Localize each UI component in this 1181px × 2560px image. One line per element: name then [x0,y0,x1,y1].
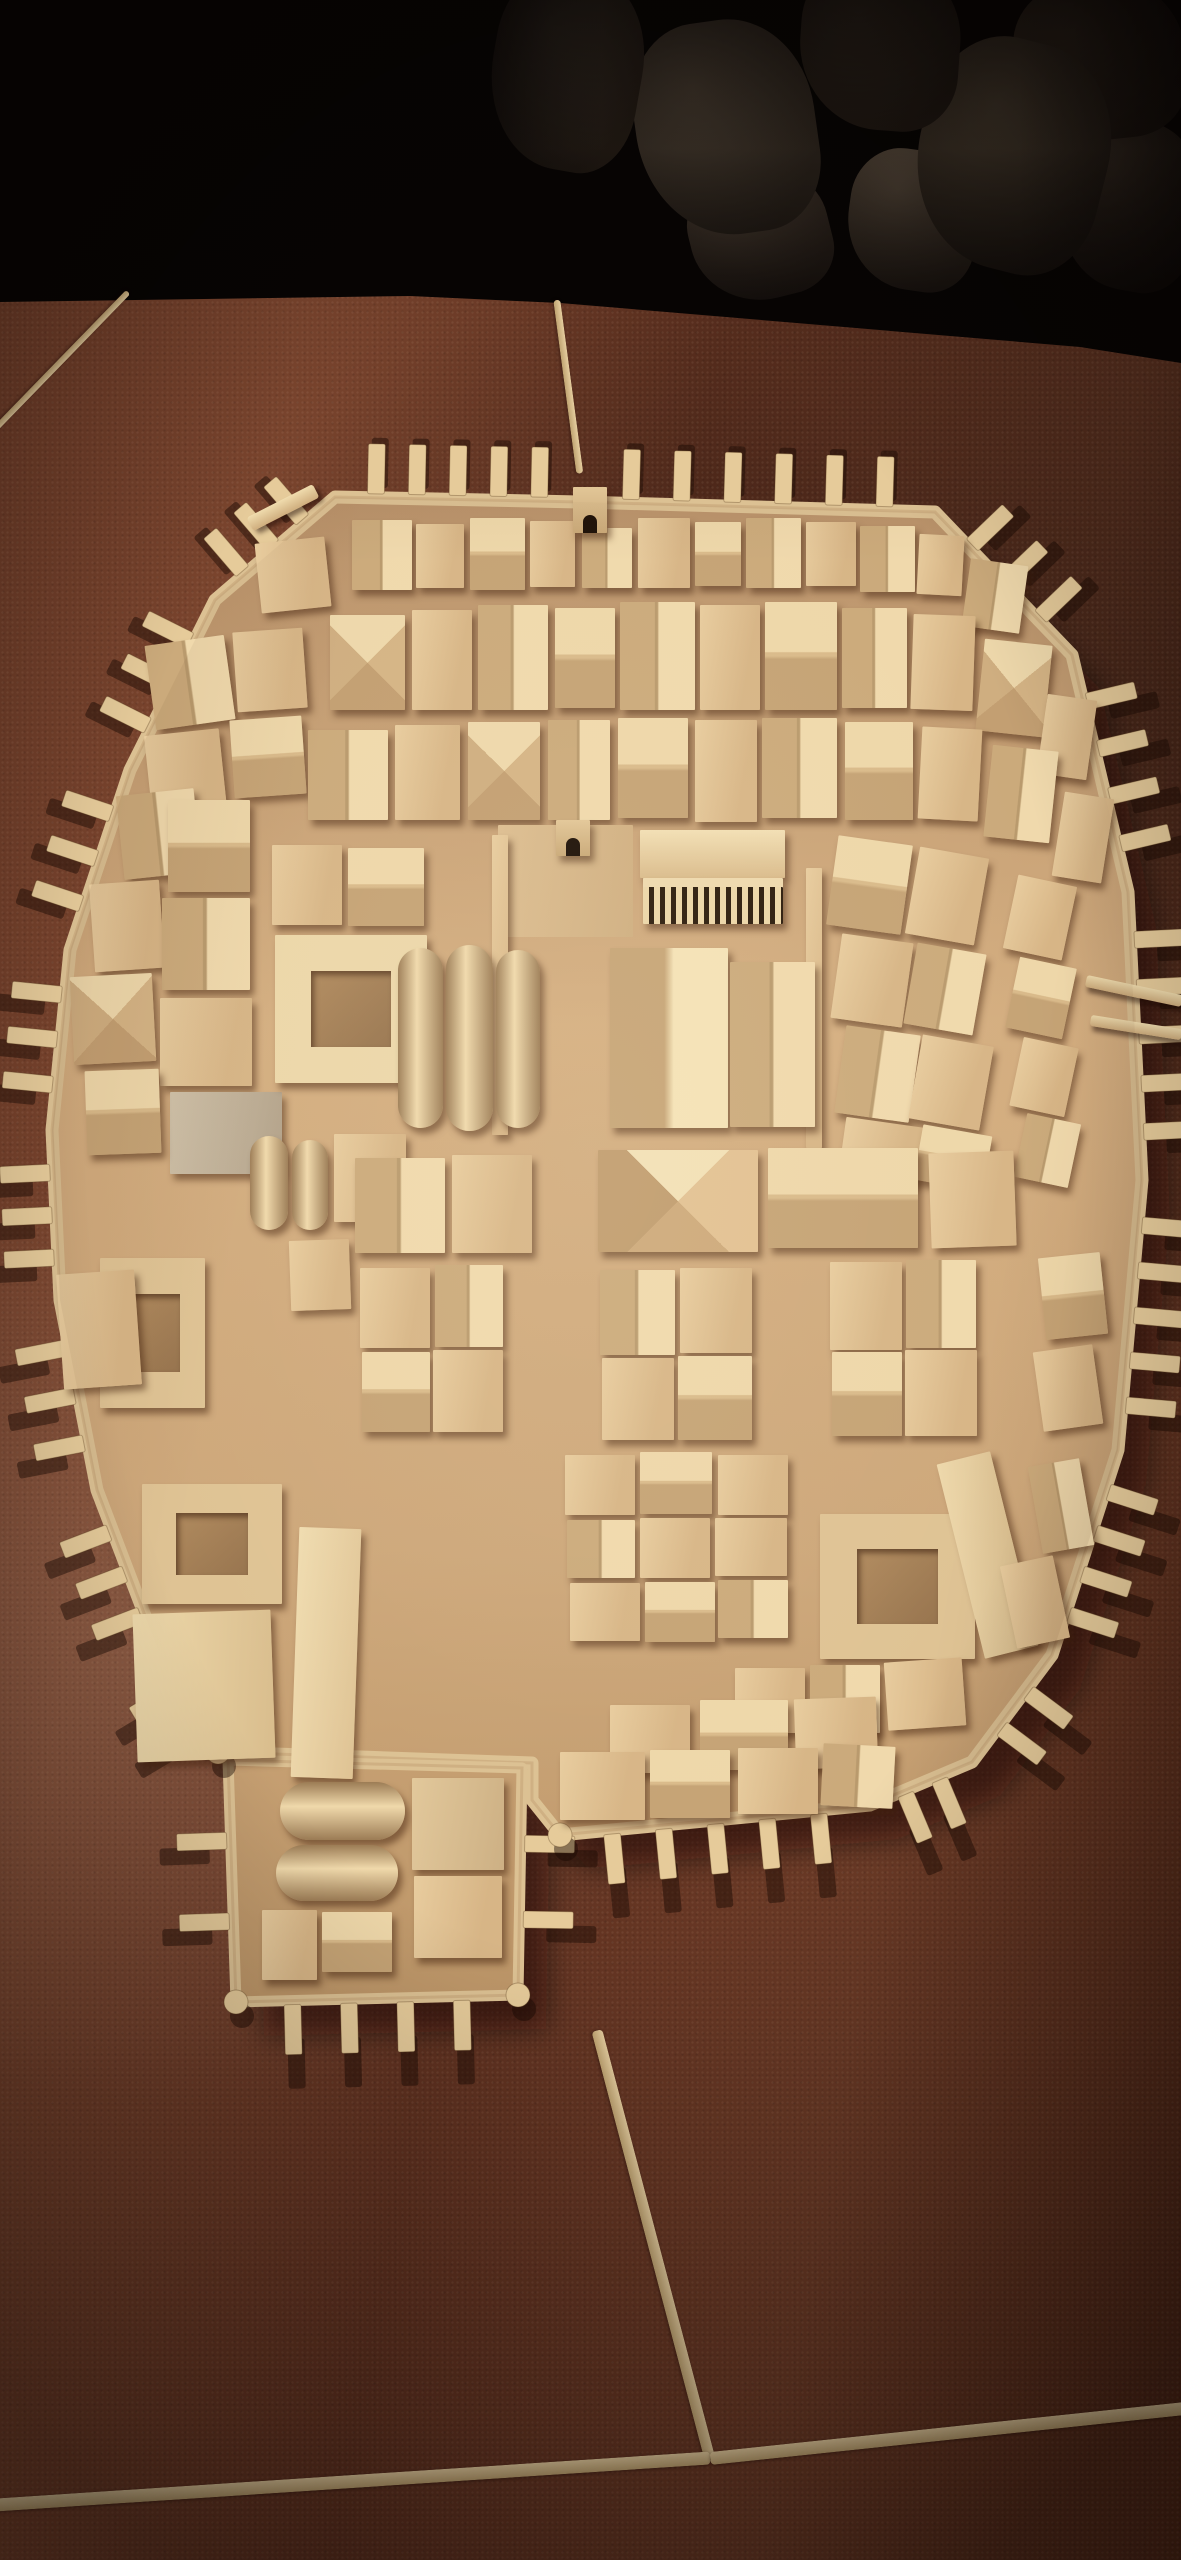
wall-tower [176,1832,227,1851]
museum-photo-scene [0,0,1181,2560]
wall-tower [367,444,385,494]
wall-tower [622,449,640,499]
corner-tower [224,1990,248,2014]
wall-tower [397,2002,415,2052]
wall-tower [179,1913,230,1932]
wall-tower [0,1164,50,1183]
wall-tower [449,445,467,495]
wall-tower [724,452,742,502]
corner-tower [506,1983,530,2007]
wall-tower [284,2004,302,2054]
wall-tower [523,1911,573,1929]
wall-tower [531,447,549,497]
city-model-walls [0,0,1181,2560]
wall-tower [408,445,426,495]
wall-tower [825,455,843,505]
wall-tower [4,1249,55,1268]
wall-tower [453,2000,471,2050]
wall-tower [1141,1073,1181,1092]
wall-tower [490,446,508,496]
wall-tower [340,2003,358,2053]
wall-tower [876,456,894,506]
wall-tower [1134,929,1181,948]
corner-tower [206,1740,230,1764]
wall-tower [774,453,792,503]
corner-tower [548,1823,572,1847]
wall-tower [1143,1121,1181,1140]
wall-tower [2,1207,53,1226]
wall-tower [673,451,691,501]
